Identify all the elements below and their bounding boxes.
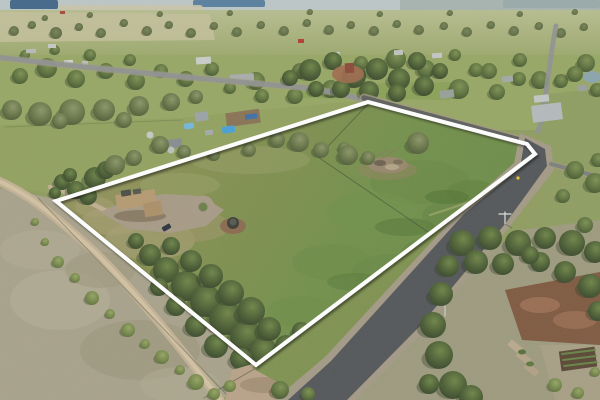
photo-grain-overlay xyxy=(0,0,600,400)
aerial-photo-frame xyxy=(0,0,600,400)
aerial-photo xyxy=(0,0,600,400)
